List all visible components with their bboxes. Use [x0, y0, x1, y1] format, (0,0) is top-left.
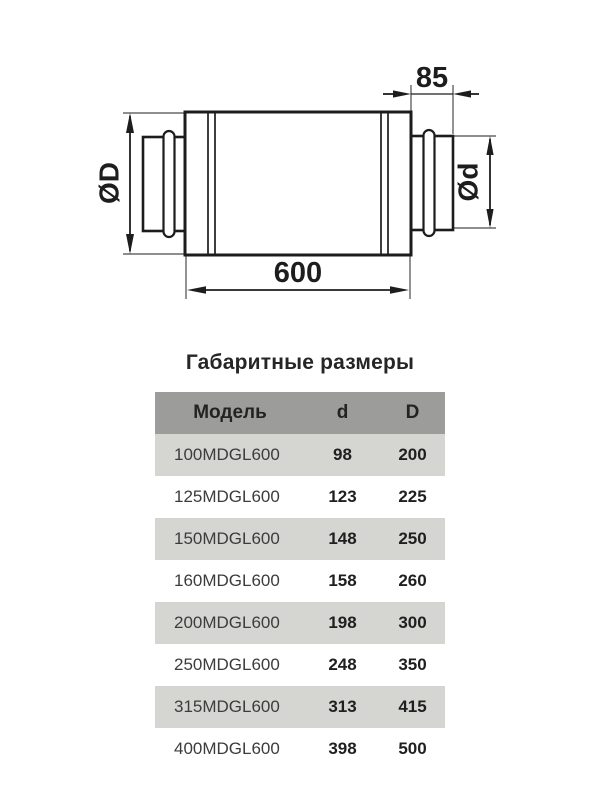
model-cell: 160MDGL600 [155, 560, 305, 602]
table-row: 250MDGL600 248 350 [155, 644, 445, 686]
D-cell: 225 [380, 476, 445, 518]
D-cell: 250 [380, 518, 445, 560]
D-cell: 500 [380, 728, 445, 770]
header-model: Модель [155, 392, 305, 434]
d-cell: 123 [305, 476, 380, 518]
model-cell: 200MDGL600 [155, 602, 305, 644]
technical-drawing: ØD Ød 85 600 [0, 0, 600, 340]
d-cell: 158 [305, 560, 380, 602]
model-cell: 400MDGL600 [155, 728, 305, 770]
section-title: Габаритные размеры [0, 351, 600, 375]
D-cell: 415 [380, 686, 445, 728]
d-cell: 398 [305, 728, 380, 770]
table-row: 400MDGL600 398 500 [155, 728, 445, 770]
dimensions-table: Модель d D 100MDGL600 98 200 125MDGL600 … [155, 392, 445, 770]
d-cell: 98 [305, 434, 380, 476]
header-d: d [305, 392, 380, 434]
product-dimensions-page: ØD Ød 85 600 Габаритные размеры Модель d… [0, 0, 600, 800]
d-cell: 198 [305, 602, 380, 644]
table-header-row: Модель d D [155, 392, 445, 434]
table-row: 150MDGL600 148 250 [155, 518, 445, 560]
model-cell: 125MDGL600 [155, 476, 305, 518]
dim-label-spigot-length: 85 [416, 62, 448, 94]
table-row: 100MDGL600 98 200 [155, 434, 445, 476]
d-cell: 148 [305, 518, 380, 560]
silencer-body [185, 112, 411, 255]
d-cell: 313 [305, 686, 380, 728]
table-row: 160MDGL600 158 260 [155, 560, 445, 602]
table-row: 315MDGL600 313 415 [155, 686, 445, 728]
D-cell: 300 [380, 602, 445, 644]
header-D: D [380, 392, 445, 434]
dim-label-body-diameter: ØD [93, 162, 124, 204]
D-cell: 350 [380, 644, 445, 686]
d-cell: 248 [305, 644, 380, 686]
table-row: 125MDGL600 123 225 [155, 476, 445, 518]
D-cell: 200 [380, 434, 445, 476]
model-cell: 100MDGL600 [155, 434, 305, 476]
table-row: 200MDGL600 198 300 [155, 602, 445, 644]
dim-label-spigot-diameter: Ød [452, 163, 483, 202]
model-cell: 315MDGL600 [155, 686, 305, 728]
model-cell: 250MDGL600 [155, 644, 305, 686]
model-cell: 150MDGL600 [155, 518, 305, 560]
D-cell: 260 [380, 560, 445, 602]
left-spigot-bead [164, 131, 175, 237]
dim-label-body-length: 600 [274, 257, 322, 289]
right-spigot-bead [424, 130, 435, 236]
